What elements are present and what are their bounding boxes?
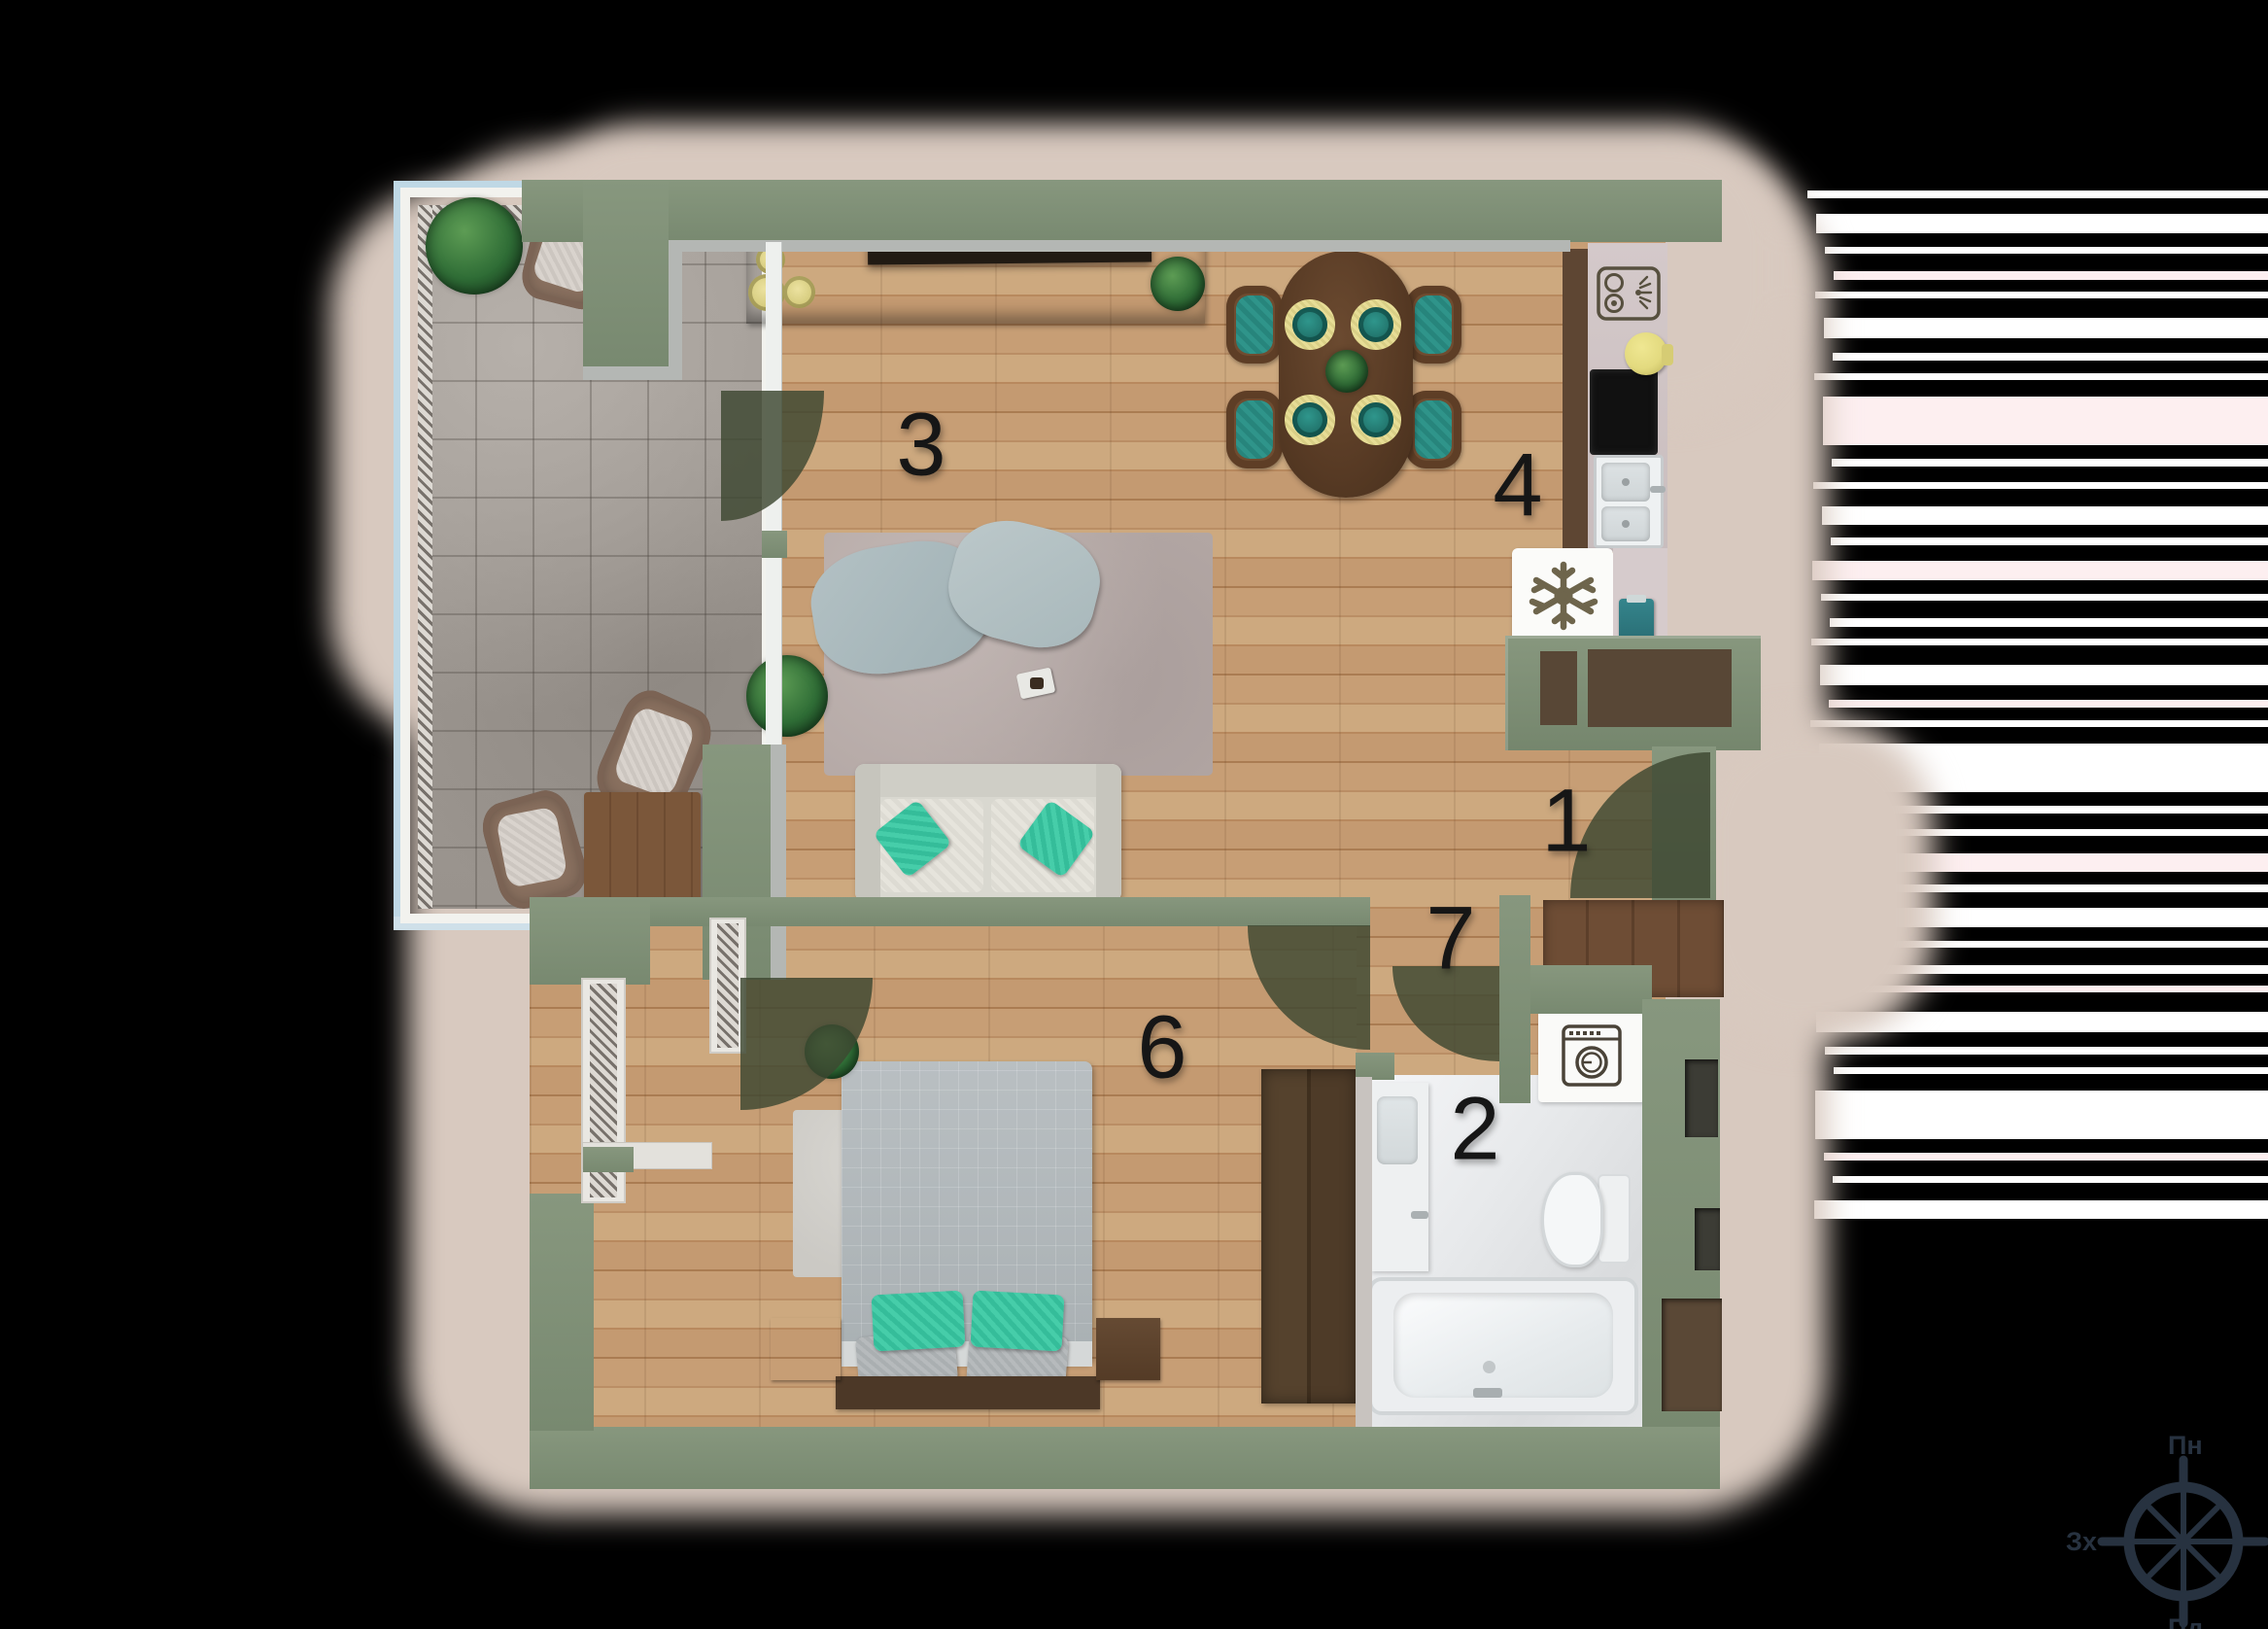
closet-door: [1540, 651, 1577, 725]
coffee-cup: [1030, 677, 1044, 689]
chair-seat: [1236, 295, 1273, 354]
room-label-7: 7: [1426, 888, 1475, 990]
bathroom-faucet: [1411, 1211, 1428, 1219]
bathtub-basin: [1393, 1293, 1613, 1398]
compass-south-label: Пд: [2168, 1613, 2204, 1629]
stripe: [1812, 561, 2268, 580]
stripe: [1820, 665, 2268, 685]
table-centerpiece-plant: [1325, 350, 1368, 393]
bed-headboard: [836, 1376, 1100, 1409]
wall-niche: [1685, 1059, 1718, 1137]
wall-face: [669, 240, 1570, 252]
plate: [1292, 307, 1327, 342]
closet-door: [1588, 649, 1732, 727]
kitchen-faucet: [1650, 486, 1666, 493]
stripe: [1833, 353, 2268, 361]
wall-face: [669, 243, 682, 369]
chair-seat: [1415, 400, 1452, 459]
wardrobe: [1261, 1069, 1357, 1404]
cooktop: [1590, 369, 1658, 455]
stripe: [1813, 482, 2268, 489]
stripe: [1825, 247, 2268, 254]
dining-chair: [1405, 391, 1461, 468]
wall: [530, 897, 650, 985]
stripe: [1810, 720, 2268, 727]
wall-pier: [762, 531, 787, 558]
wall-pier: [583, 1147, 634, 1172]
stripe: [1824, 318, 2268, 338]
plate: [1358, 402, 1393, 437]
wall: [1356, 1077, 1372, 1431]
stripe: [1824, 1153, 2268, 1161]
room-label-6: 6: [1137, 997, 1186, 1099]
bed-pillow: [872, 1291, 966, 1352]
balcony-table: [584, 792, 701, 911]
stripe: [1834, 271, 2268, 280]
nightstand: [1096, 1318, 1160, 1380]
wall-face: [771, 745, 786, 980]
nightstand: [771, 1318, 841, 1380]
coffee-machine: [1619, 599, 1654, 640]
room-label-3: 3: [896, 395, 945, 497]
bedroom-window: [717, 923, 739, 1048]
stripe: [1815, 292, 2268, 298]
stripe: [1830, 618, 2268, 627]
stripe: [1821, 594, 2268, 601]
washing-machine-icon: [1562, 1024, 1622, 1087]
stripe: [1807, 191, 2268, 198]
wall: [522, 180, 1722, 242]
stripe: [1811, 639, 2268, 645]
bed-pillow: [971, 1291, 1065, 1352]
sink-drain: [1622, 478, 1630, 486]
stripe: [1831, 537, 2268, 545]
bathroom-sink: [1377, 1096, 1418, 1164]
balcony-plant: [426, 197, 523, 295]
coffee-machine-lid: [1627, 595, 1646, 603]
wall-niche: [1662, 1299, 1722, 1411]
wall: [530, 897, 1370, 926]
chair-seat: [1236, 400, 1273, 459]
decor-bowl: [783, 276, 815, 308]
stripe: [1834, 1067, 2268, 1074]
wall: [1530, 965, 1652, 1014]
stripe: [1815, 1091, 2268, 1139]
wall: [530, 1194, 594, 1431]
sofa: [855, 764, 1121, 902]
stripe: [1823, 397, 2268, 445]
wall: [1356, 1053, 1394, 1080]
plate: [1358, 307, 1393, 342]
dining-chair: [1226, 391, 1283, 468]
chair-seat: [1415, 295, 1452, 354]
stripe: [1832, 459, 2268, 467]
kettle-handle: [1662, 344, 1673, 365]
stripe: [1833, 1176, 2268, 1183]
wall-niche: [1695, 1208, 1720, 1270]
wall: [530, 1427, 1720, 1489]
stripe: [1814, 1200, 2268, 1219]
stove-icon: [1597, 266, 1661, 321]
compass-north-label: Пн: [2168, 1431, 2203, 1460]
stripe: [1829, 700, 2268, 708]
sofa-armrest: [1096, 764, 1121, 902]
wall-face: [583, 366, 682, 380]
glow-backdrop: [1691, 719, 1934, 1040]
toilet: [1541, 1172, 1603, 1267]
wall: [583, 180, 669, 366]
living-room-plant: [746, 655, 828, 737]
bathtub-faucet: [1473, 1388, 1502, 1398]
compass-icon: Пн Пд Зх Сх: [2081, 1433, 2268, 1629]
kitchen-side-panel: [1563, 249, 1590, 552]
bathtub-drain: [1483, 1361, 1495, 1373]
sink-drain: [1622, 520, 1630, 528]
room-label-1: 1: [1541, 771, 1591, 873]
room-label-4: 4: [1493, 435, 1542, 537]
room-label-2: 2: [1450, 1079, 1499, 1181]
sofa-backrest: [855, 764, 1121, 797]
wall: [1499, 895, 1530, 1103]
armchair-cushion: [496, 806, 568, 887]
dining-chair: [1226, 286, 1283, 364]
armchair-cushion: [612, 705, 698, 799]
stripe: [1816, 214, 2268, 233]
sideboard-plant: [1151, 257, 1205, 311]
plate: [1292, 402, 1327, 437]
bathroom-round-rug: [1428, 1174, 1524, 1269]
compass-west-label: Зх: [2066, 1527, 2097, 1556]
snowflake-icon: [1529, 562, 1598, 630]
dining-chair: [1405, 286, 1461, 364]
stripe: [1825, 1047, 2268, 1055]
stripe: [1822, 506, 2268, 525]
floor-plan-scene: 1 2 3 4 6 7 Пн Пд Зх Сх: [0, 0, 2268, 1629]
stripe: [1814, 373, 2268, 380]
